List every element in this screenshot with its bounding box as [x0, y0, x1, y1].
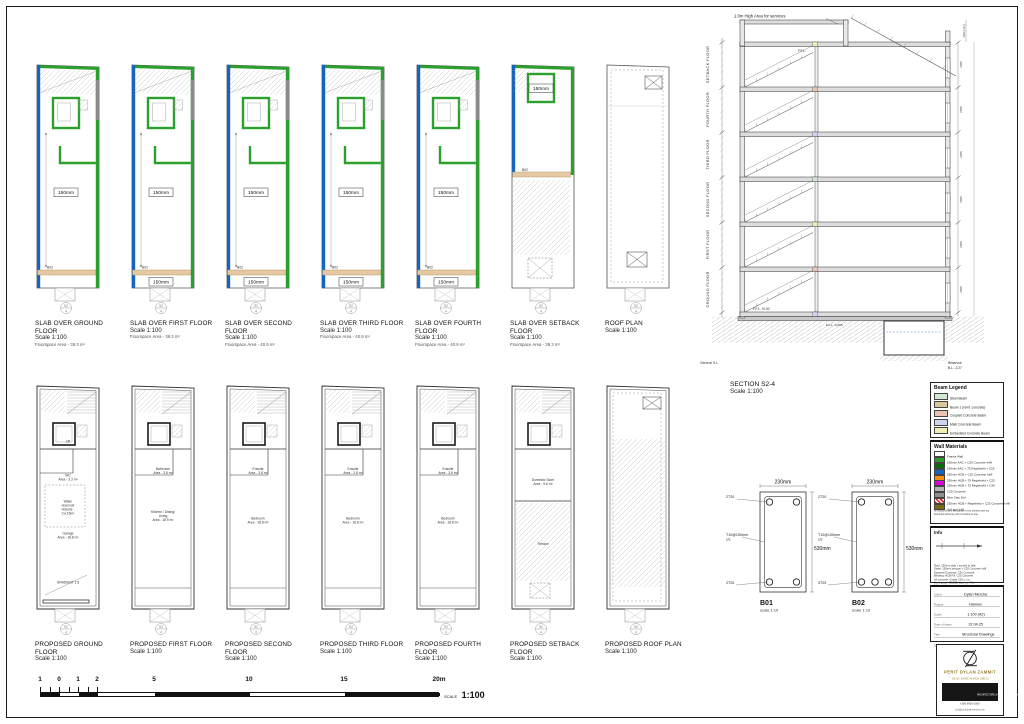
plan-scale: Scale 1:100 [130, 328, 220, 335]
scale-bar-strip [40, 692, 439, 697]
section-marker-bottom: 4 [65, 630, 67, 634]
stair-bulkhead [55, 609, 75, 622]
slab-bottom-thickness-label: 150mm [438, 280, 454, 286]
slab-plan-drawing: 150mmB02S24 [33, 62, 115, 314]
party-wall-left [417, 65, 420, 288]
section-marker-bottom: 4 [540, 309, 542, 313]
slab-plan-drawing: 150mmB02S24 [508, 62, 590, 314]
plan-caption: PROPOSED SECOND FLOORScale 1:100 [223, 641, 315, 664]
beam-bottom-bars: 3T25 [818, 581, 826, 585]
scale-bar-ratio: SCALE 1:100 [444, 685, 485, 703]
section-marker: S24 [251, 303, 262, 314]
beam-b02 [418, 270, 476, 275]
room-label: Area - 3.3 m² [58, 478, 78, 482]
legend-label: 230mm HCB + C25 Concrete Infill [947, 473, 992, 476]
section-scale: Scale 1:100 [730, 388, 775, 395]
room-label: Area - 3.8 m² [248, 471, 268, 475]
party-wall-left [322, 65, 325, 288]
plan-scale: Scale 1:100 [605, 328, 695, 335]
beam-b02 [513, 172, 571, 177]
section-marker: S24 [61, 303, 72, 314]
party-wall-left [132, 65, 135, 288]
beam-legend-items: Steel BeamBeam 1 (reinf. concrete)Couple… [934, 392, 1000, 435]
shaft-box [627, 252, 647, 267]
plan-cell: 150mmB02150mmS24SLAB OVER FOURTH FLOORSc… [413, 62, 505, 349]
plan-scale: Scale 1:100 [605, 649, 695, 656]
lift-shaft [243, 98, 269, 128]
shaft-hatch [362, 425, 372, 437]
beam-detail-id: B01 [760, 600, 773, 607]
slab-plan-drawing: 150mmB02150mmS24 [413, 62, 495, 314]
field-value: Dylan Mercha [965, 593, 988, 597]
plan-outline [227, 386, 289, 609]
scale-bar-segment [345, 693, 440, 696]
beam-links-cc: c/c [818, 538, 823, 542]
plan-title: PROPOSED GROUND FLOOR [35, 641, 125, 656]
beam-width-dim: 230mm [775, 480, 792, 486]
ffl-top-label: F.F.L. [798, 49, 806, 53]
stair-hatch [326, 390, 350, 413]
plan-title: PROPOSED FIRST FLOOR [130, 641, 220, 649]
beam-links-cc: c/c [726, 538, 731, 542]
reservoir [884, 321, 944, 355]
slab-bottom-thickness-label: 150mm [153, 280, 169, 286]
services-note: 1.0m High Area for services [734, 14, 785, 19]
storey-dim: 2865 [959, 241, 963, 248]
slab-plan-drawing: 150mmB02150mmS24 [128, 62, 210, 314]
shaft-hatch [552, 425, 562, 437]
lift-shaft [338, 423, 360, 445]
plan-cell: Domestic StoreArea - 9.6 m²TerraceS24PRO… [508, 383, 600, 664]
section-marker-bottom: 4 [635, 309, 637, 313]
legend-label: Blue Clay Soil [947, 497, 966, 500]
section-marker: S24 [631, 624, 642, 635]
shaft-hatch [174, 100, 183, 110]
slab-thickness-label: 150mm [533, 86, 549, 92]
beam-ref-label: B02 [332, 266, 338, 270]
wall-right-existing [286, 80, 289, 120]
void-box [530, 583, 550, 598]
section-marker-top: S2 [159, 625, 163, 629]
lift-shaft [433, 98, 459, 128]
section-caption: SECTION S2-4 Scale 1:100 [730, 381, 775, 395]
section-marker-top: S2 [159, 304, 163, 308]
lift-shaft [338, 98, 364, 128]
plan-scale: Scale 1:100 [320, 649, 410, 656]
plan-cell: EnsuiteArea - 3.8 m²BedroomArea - 18.8 m… [413, 383, 505, 664]
scale-bar-number: 0 [49, 676, 69, 683]
shaft-hatch [79, 100, 88, 110]
field-value: 1:100 (A2) [967, 613, 984, 617]
firm-logo-icon [953, 647, 987, 670]
plan-caption: SLAB OVER FIRST FLOORScale 1:100Floorspa… [128, 320, 220, 341]
scale-bar-minor-tick [78, 687, 79, 692]
plan-area: Floorspace Area - 40.9 m² [225, 343, 314, 348]
roof-hatch [611, 439, 665, 587]
plan-cell: EnsuiteArea - 3.8 m²BedroomArea - 18.8 m… [223, 383, 315, 664]
section-marker: S24 [61, 624, 72, 635]
scale-bar-segment [79, 693, 98, 696]
stair-bulkhead [245, 288, 265, 301]
stair-bulkhead [245, 609, 265, 622]
legend-label: Franka Wall [947, 455, 963, 458]
slab-thickness-label: 150mm [343, 190, 359, 196]
shaft-hatch [457, 425, 467, 437]
plan-title: SLAB OVER GROUND FLOOR [35, 320, 125, 335]
proposed-plan-drawing: EnsuiteArea - 3.8 m²BedroomArea - 18.8 m… [223, 383, 305, 635]
wall-materials-note: All sections and wall guides to be verif… [934, 510, 1000, 516]
proposed-plan-drawing: EnsuiteArea - 3.8 m²BedroomArea - 18.8 m… [413, 383, 495, 635]
section-marker-bottom: 4 [255, 309, 257, 313]
stair-hatch [419, 69, 477, 95]
scale-bar-number: 5 [144, 676, 164, 683]
firm-credentials: B.E.&A. (HONS.) M.ARCH. (MELIT.) [952, 678, 989, 680]
legend-label: 150mm AAC + 75 Regishield + C25 [947, 467, 994, 470]
stair-bulkhead [530, 288, 550, 301]
lift-shaft [148, 98, 174, 128]
section-marker-top: S2 [254, 304, 258, 308]
plan-title: SLAB OVER SECOND FLOOR [225, 320, 315, 335]
plan-outline [37, 386, 99, 609]
wall-right-existing [381, 80, 384, 120]
firm-tel: +356 9900 0000 [960, 703, 980, 706]
section-svg: 1.0m High Area for servicesSETBACK FLOOR… [698, 12, 1018, 380]
field-value: Structural Drawings [962, 633, 994, 637]
section-marker-top: S2 [349, 625, 353, 629]
room-label: Area - 3.8 m² [153, 471, 173, 475]
wall-materials-box: Wall Materials Franka Wall150mm AAC + C2… [930, 440, 1004, 524]
wall-right-existing [476, 80, 479, 120]
wall-right [571, 67, 574, 175]
plan-cell: BathroomArea - 3.8 m²Kitchen / Dining/Li… [128, 383, 220, 656]
scale-bar-number: 20m [429, 676, 449, 683]
room-label: Area - 18.8 m² [247, 520, 269, 524]
section-marker: S24 [156, 624, 167, 635]
section-marker-top: S2 [64, 304, 68, 308]
beam-detail-B02: 230mm530mm2T20T10@150mmc/c3T25B02scale 1… [818, 480, 923, 613]
plan-scale: Scale 1:100 [320, 328, 410, 335]
section-floor-label: GROUND FLOOR [705, 271, 710, 307]
plan-scale: Scale 1:100 [510, 335, 600, 342]
plan-cell: LiftWCArea - 3.3 m²WaterreservoirVolume … [33, 383, 125, 664]
shaft-hatch [459, 100, 468, 110]
plan-caption: PROPOSED GROUND FLOORScale 1:100 [33, 641, 125, 664]
beam-detail-scale: scale 1:10 [852, 608, 871, 613]
lift-shaft [53, 98, 79, 128]
storey-dim: 2865 [959, 61, 963, 68]
beam-ref-label: B02 [237, 266, 243, 270]
info-note-text: All concrete: Grade C25 u.n.o. [934, 578, 970, 581]
slab-thickness-label: 150mm [58, 190, 74, 196]
firm-bar-text: ARCHITECTURE & CIVIL ENGINEERING [977, 694, 1020, 696]
section-marker-bottom: 4 [160, 309, 162, 313]
plan-title: PROPOSED SECOND FLOOR [225, 641, 315, 656]
field-label: Title [934, 634, 940, 637]
plan-caption: ROOF PLANScale 1:100 [603, 320, 695, 335]
section-floor-label: THIRD FLOOR [705, 139, 710, 169]
beam-links: T10@150mm [726, 533, 748, 537]
legend-label: Main Concrete Beam [950, 423, 981, 426]
lift-shaft [53, 423, 75, 445]
section-marker-top: S2 [444, 304, 448, 308]
party-wall-left [227, 65, 230, 288]
legend-label: C25 Concrete [947, 491, 966, 494]
scale-bar-minor-tick [69, 687, 70, 692]
beam-detail-B01: 230mm530mm2T20T10@150mmc/c2T25B01scale 1… [726, 480, 831, 613]
plan-scale: Scale 1:100 [510, 656, 600, 663]
scale-bar-number: 1 [68, 676, 88, 683]
info-sketch [934, 540, 996, 549]
info-note-text: Slabs: 150mm precast + C25 Concrete Infi… [934, 568, 986, 571]
terrace-hatch [513, 180, 570, 255]
scale-bar-minor-tick [50, 687, 51, 692]
room-label: Area - 18.9 m² [152, 518, 174, 522]
scale-bar-number: 15 [334, 676, 354, 683]
plan-outline [417, 386, 479, 609]
info-note-text: Blinding: HCB Fill, C25 Concrete [934, 575, 973, 578]
stair-bulkhead [150, 609, 170, 622]
room-label: Area - 9.6 m² [533, 482, 553, 486]
beam-legend-box: Beam Legend Steel BeamBeam 1 (reinf. con… [930, 382, 1004, 438]
shaft-hatch [267, 425, 277, 437]
slab-thickness-label: 150mm [438, 190, 454, 196]
room-label: Lift [66, 439, 70, 443]
reservoir-label: Reservoir [948, 361, 963, 365]
room-label: Area - 18.8 m² [437, 520, 459, 524]
section-marker: S24 [441, 624, 452, 635]
stair-bulkhead [625, 609, 645, 622]
section-marker: S24 [631, 303, 642, 314]
legend-swatch [934, 410, 948, 417]
section-title: SECTION S2-4 [730, 381, 775, 388]
beam-height-dim: 530mm [814, 546, 831, 552]
section-marker-bottom: 4 [445, 309, 447, 313]
section-marker: S24 [346, 624, 357, 635]
plan-caption: SLAB OVER GROUND FLOORScale 1:100Floorsp… [33, 320, 125, 349]
plan-caption: PROPOSED FIRST FLOORScale 1:100 [128, 641, 220, 656]
slab-thickness-label: 150mm [248, 190, 264, 196]
shaft-hatch [269, 100, 278, 110]
plan-area: Floorspace Area - 39.3 m² [510, 343, 599, 348]
wall-right-existing [191, 80, 194, 120]
room-label: Area - 3.8 m² [343, 471, 363, 475]
field-label: Scale [934, 613, 942, 616]
section-marker-bottom: 4 [635, 630, 637, 634]
section-marker-top: S2 [444, 625, 448, 629]
plan-cell: 150mmB02150mmS24SLAB OVER THIRD FLOORSca… [318, 62, 410, 341]
plan-cell: S24PROPOSED ROOF PLANScale 1:100 [603, 383, 695, 656]
plan-cell: EnsuiteArea - 3.8 m²BedroomArea - 18.8 m… [318, 383, 410, 656]
section-marker-top: S2 [539, 304, 543, 308]
scale-bar-minor-tick [97, 687, 98, 692]
foundation [738, 317, 952, 321]
beam-b02 [323, 270, 381, 275]
field-label: Client [934, 593, 942, 596]
rooflight-box [643, 397, 661, 409]
lift-shaft [243, 423, 265, 445]
legend-label: Steel Beam [950, 398, 967, 401]
legend-swatch [934, 419, 948, 426]
stair-bulkhead [340, 288, 360, 301]
section-marker-bottom: 4 [255, 630, 257, 634]
info-notes: Roof: 150mm slab + screed to fallsSlabs:… [934, 554, 1000, 578]
legend-swatch [934, 427, 948, 434]
plan-caption: PROPOSED ROOF PLANScale 1:100 [603, 641, 695, 656]
beam-ref-label: B02 [142, 266, 148, 270]
beam-ref-label: B02 [427, 266, 433, 270]
scale-bar-segment [155, 693, 250, 696]
lift-shaft [528, 423, 550, 445]
proposed-plan-drawing: Domestic StoreArea - 9.6 m²TerraceS24 [508, 383, 590, 635]
rooflight-box [645, 76, 662, 89]
stair-bulkhead [340, 609, 360, 622]
plan-scale: Scale 1:100 [415, 335, 505, 342]
stair-hatch [39, 69, 97, 95]
stair-bulkhead [625, 288, 645, 301]
section-marker-top: S2 [634, 625, 638, 629]
section-floor-label: SECOND FLOOR [705, 182, 710, 218]
section-floor-label: SETBACK FLOOR [705, 46, 710, 83]
proposed-plan-drawing: LiftWCArea - 3.3 m²WaterreservoirVolume … [33, 383, 115, 635]
title-block: ClientDylan MerchaProjectHamrunScale1:10… [930, 585, 1004, 642]
storey-dim: 2865 [959, 286, 963, 293]
slab-plan-drawing: 150mmB02150mmS24 [223, 62, 305, 314]
beam-b02 [228, 270, 286, 275]
legend-swatch [934, 401, 948, 408]
slab-bottom-thickness-label: 150mm [343, 280, 359, 286]
lift-shaft [148, 423, 170, 445]
section-marker-bottom: 4 [350, 630, 352, 634]
plan-caption: PROPOSED SETBACK FLOORScale 1:100 [508, 641, 600, 664]
plan-scale: Scale 1:100 [225, 656, 315, 663]
stair-bulkhead [150, 288, 170, 301]
field-value: Hamrun [969, 603, 982, 607]
beam-height-dim: 530mm [906, 546, 923, 552]
slab-plan-drawing: S24 [603, 62, 685, 314]
plan-cell: S24ROOF PLANScale 1:100 [603, 62, 695, 335]
plan-title: SLAB OVER FOURTH FLOOR [415, 320, 505, 335]
legend-label: 230mm HCB + Regishield + C25 Concrete In… [947, 503, 1010, 506]
firm-bar: ARCHITECTURE & CIVIL ENGINEERING [942, 683, 997, 701]
room-label: Terrace [538, 542, 549, 546]
plan-title: PROPOSED THIRD FLOOR [320, 641, 410, 649]
plan-scale: Scale 1:100 [225, 335, 315, 342]
plan-cell: 150mmB02S24SLAB OVER GROUND FLOORScale 1… [33, 62, 125, 349]
beam-ref-label: B02 [47, 266, 53, 270]
legend-label: Embedded Concrete Beam [950, 432, 990, 435]
plan-title: PROPOSED SETBACK FLOOR [510, 641, 600, 656]
plan-scale: Scale 1:100 [35, 656, 125, 663]
scale-bar-segment [41, 693, 60, 696]
beam-b02 [133, 270, 191, 275]
beam-details: 230mm530mm2T20T10@150mmc/c2T25B01scale 1… [722, 472, 934, 627]
wall-materials-items: Franka Wall150mm AAC + C25 Concrete Infi… [934, 451, 1000, 510]
general-sl-label: General S.L. [700, 361, 719, 365]
firm-email: info@peritdylanzammit.com [955, 709, 985, 711]
plan-cell: 150mmB02150mmS24SLAB OVER SECOND FLOORSc… [223, 62, 315, 349]
plan-outline [132, 386, 194, 609]
section-marker: S24 [536, 624, 547, 635]
scale-word: SCALE [444, 694, 457, 699]
section-marker-top: S2 [254, 625, 258, 629]
slab-bottom-thickness-label: 150mm [248, 280, 264, 286]
legend-label: 150mm AAC + C25 Concrete Infill [947, 461, 992, 464]
beam-legend-item: Embedded Concrete Beam [934, 426, 1000, 435]
plan-area: Floorspace Area - 40.9 m² [415, 343, 504, 348]
storey-dim: 2865 [959, 196, 963, 203]
plan-caption: SLAB OVER THIRD FLOORScale 1:100Floorspa… [318, 320, 410, 341]
plan-area: Floorspace Area - 40.9 m² [320, 335, 409, 340]
right-dim-chain [956, 41, 975, 317]
left-dim-chain [720, 38, 725, 318]
plan-cell: 150mmB02150mmS24SLAB OVER FIRST FLOORSca… [128, 62, 220, 341]
plan-scale: Scale 1:100 [415, 656, 505, 663]
wall-right-existing [96, 80, 99, 120]
field-label: Date of Issue [934, 624, 952, 627]
shaft-hatch [364, 100, 373, 110]
title-block-rows: ClientDylan MerchaProjectHamrunScale1:10… [934, 587, 1000, 647]
scale-bar-minor-tick [40, 687, 41, 692]
beam-details-svg: 230mm530mm2T20T10@150mmc/c2T25B01scale 1… [722, 472, 934, 622]
plan-title: SLAB OVER FIRST FLOOR [130, 320, 220, 328]
room-label: Area - 18.8 m² [57, 535, 79, 539]
legend-label: 230mm HCB + 75 Regishield + C25 [947, 479, 995, 482]
scale-bar-minor-tick [88, 687, 89, 692]
scale-bar: 10125101520m SCALE 1:100 [14, 676, 484, 710]
stair-hatch [421, 390, 445, 413]
field-label: Project [934, 603, 943, 606]
beam-width-dim: 230mm [867, 480, 884, 486]
slab-thickness-label: 150mm [153, 190, 169, 196]
beam-b02 [38, 270, 96, 275]
legend-label: Beam 1 (reinf. concrete) [950, 406, 985, 409]
shaft-hatch [172, 425, 182, 437]
stair-hatch [136, 390, 160, 413]
section-floor-label: FIRST FLOOR [705, 230, 710, 260]
stair-hatch [229, 69, 287, 95]
beam-bottom-bars: 2T25 [726, 581, 734, 585]
beam-ref-label: B02 [522, 168, 528, 172]
plan-title: SLAB OVER THIRD FLOOR [320, 320, 410, 328]
ffl-lower-label: F.F.L. -0.295 [826, 323, 843, 327]
beam-top-bars: 2T20 [726, 495, 734, 499]
scale-bar-number: 2 [87, 676, 107, 683]
plan-title: PROPOSED ROOF PLAN [605, 641, 695, 649]
scale-bar-number: 1 [30, 676, 50, 683]
stair-bulkhead [435, 609, 455, 622]
plan-caption: SLAB OVER FOURTH FLOORScale 1:100Floorsp… [413, 320, 505, 349]
section-marker-bottom: 4 [540, 630, 542, 634]
proposed-plan-drawing: EnsuiteArea - 3.8 m²BedroomArea - 18.8 m… [318, 383, 400, 635]
scale-bar-minor-tick [59, 687, 60, 692]
section-marker-bottom: 4 [445, 630, 447, 634]
plan-scale: Scale 1:100 [130, 649, 220, 656]
legend-label: Coupled Concrete Beam [950, 415, 986, 418]
section-marker: S24 [536, 303, 547, 314]
info-title: Info [934, 530, 1000, 535]
section-marker: S24 [346, 303, 357, 314]
void-box [528, 258, 552, 278]
section-marker-top: S2 [349, 304, 353, 308]
slab-plan-drawing: 150mmB02150mmS24 [318, 62, 400, 314]
beam-detail-scale: scale 1:10 [760, 608, 779, 613]
room-label: GRADIENT 1:5 [57, 581, 80, 585]
shaft-hatch [77, 425, 87, 437]
plan-caption: SLAB OVER SETBACK FLOORScale 1:100Floors… [508, 320, 600, 349]
room-label: Area - 3.8 m² [438, 471, 458, 475]
section-drawing: 1.0m High Area for servicesSETBACK FLOOR… [698, 12, 1018, 385]
ffl-ground-label: F.F.L. +0.00 [753, 307, 770, 311]
